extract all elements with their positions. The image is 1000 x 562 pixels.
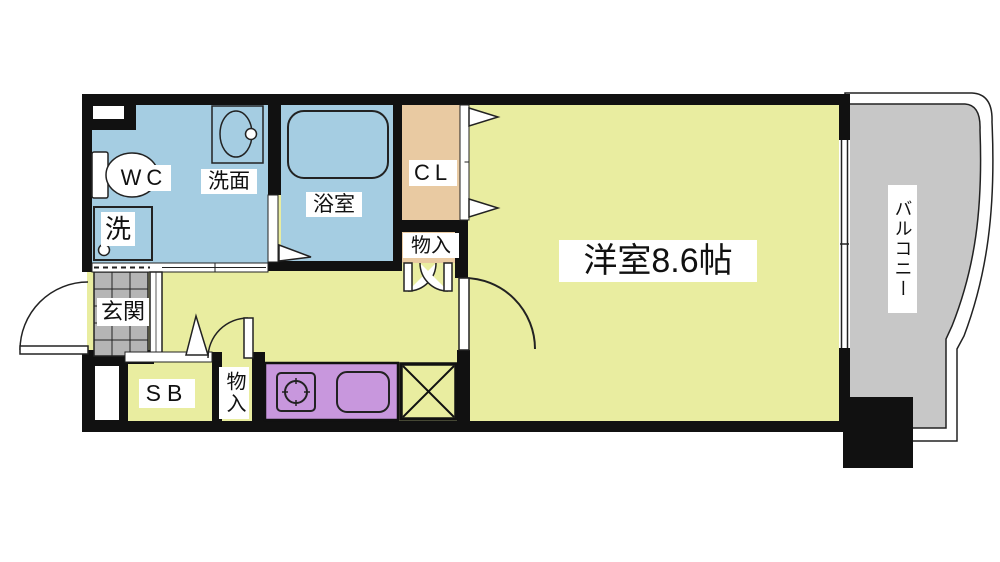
balcony-window xyxy=(839,140,850,348)
wc-label: WC xyxy=(117,165,171,191)
floor-plan: WC 洗 洗面 浴室 CL 物入 洋室8.6帖 玄関 SB 物入 バルコニー xyxy=(0,0,1000,562)
floor-plan-drawing xyxy=(0,0,1000,562)
wall-window-notch xyxy=(93,106,124,119)
storage-upper-label: 物入 xyxy=(403,233,459,258)
bathroom-floor xyxy=(281,105,393,261)
balcony-label: バルコニー xyxy=(888,185,917,313)
kitchen-counter xyxy=(265,363,398,420)
washroom-sliding-door xyxy=(92,263,268,272)
meter-box xyxy=(95,366,119,420)
main-room-label: 洋室8.6帖 xyxy=(559,240,757,282)
shoe-box-label: SB xyxy=(139,379,195,408)
closet-label: CL xyxy=(409,160,457,186)
entrance-door xyxy=(20,282,88,354)
refrigerator-space-icon xyxy=(401,364,456,419)
bathroom-label: 浴室 xyxy=(306,192,362,217)
entrance-partition xyxy=(150,272,162,356)
storage-lower-label: 物入 xyxy=(219,367,249,419)
washroom-label: 洗面 xyxy=(201,169,257,194)
laundry-label: 洗 xyxy=(101,212,135,246)
entrance-label: 玄関 xyxy=(97,298,149,326)
